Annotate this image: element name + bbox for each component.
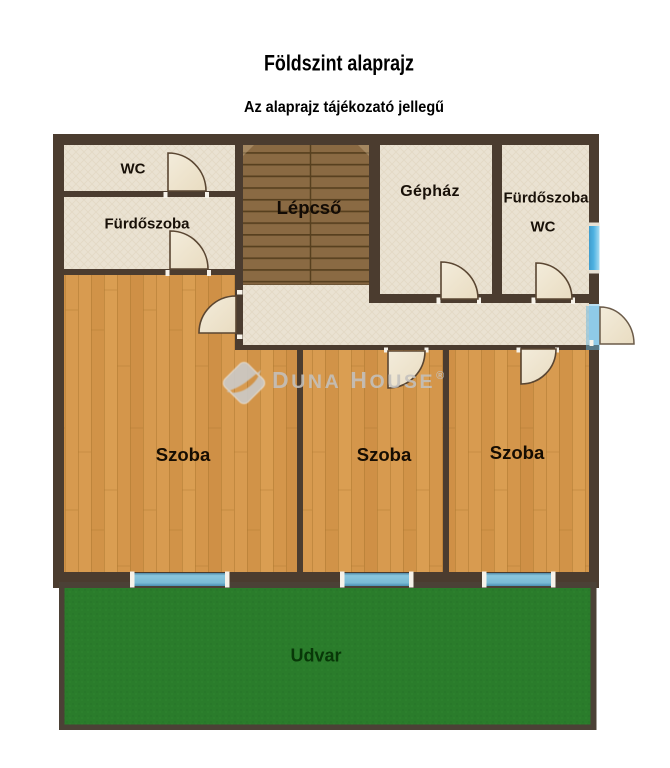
svg-text:Földszint alaprajz: Földszint alaprajz — [264, 51, 414, 76]
svg-text:WC: WC — [531, 219, 556, 236]
svg-text:DUNAHOUSE®: DUNAHOUSE® — [272, 367, 447, 393]
svg-text:Udvar: Udvar — [290, 646, 341, 666]
svg-text:Szoba: Szoba — [357, 444, 412, 465]
svg-text:Lépcső: Lépcső — [277, 197, 342, 218]
svg-text:Szoba: Szoba — [156, 444, 211, 465]
svg-text:WC: WC — [121, 161, 146, 178]
svg-text:Fürdőszoba: Fürdőszoba — [105, 216, 191, 233]
svg-text:Az alaprajz tájékozató jellegű: Az alaprajz tájékozató jellegű — [244, 99, 444, 116]
svg-text:Fürdőszoba: Fürdőszoba — [504, 190, 590, 207]
svg-text:Gépház: Gépház — [400, 183, 460, 200]
svg-text:Szoba: Szoba — [490, 442, 545, 463]
